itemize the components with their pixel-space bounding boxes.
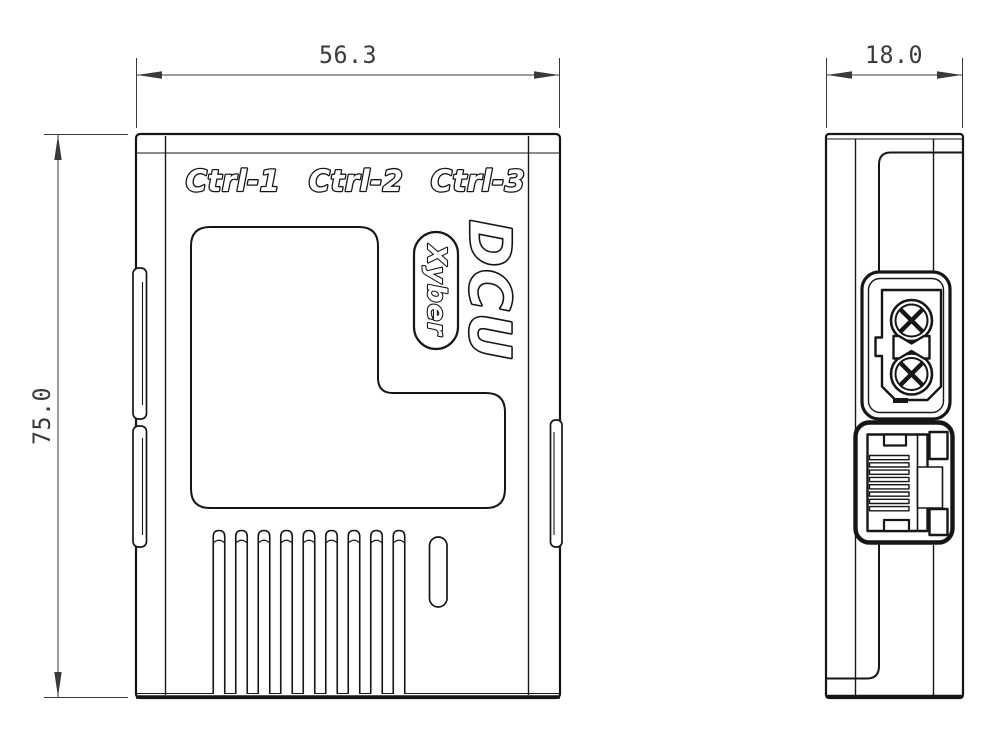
left-clip-tabs [133,268,147,547]
dimension-front-height: 75.0 [28,135,128,698]
dimension-front-width: 56.3 [137,41,560,128]
technical-drawing-sheet: Ctrl-1 Ctrl-2 Ctrl-3 Xyber DCU [0,0,1000,737]
vent-slot [393,531,405,695]
vent-slot [348,531,360,695]
dim-value-front-width: 56.3 [319,41,377,69]
front-view: Ctrl-1 Ctrl-2 Ctrl-3 Xyber DCU [133,134,562,698]
rj45-top-notch [884,435,906,446]
rj45-pin [870,456,910,460]
brand-name-text: Xyber [421,243,451,337]
port-label-ctrl2: Ctrl-2 [309,164,404,198]
rj45-shield-tab-bottom [930,509,948,535]
rj45-pin [870,499,910,503]
dim-value-front-height: 75.0 [28,387,56,445]
rj45-pin [870,470,910,474]
vent-slot [303,531,315,695]
rj45-ethernet-port [856,423,953,543]
vent-slot [258,531,270,695]
left-clip-tab-upper [133,268,147,419]
arrowhead-right [534,71,559,78]
rj45-pin [870,492,910,496]
dcu-enclosure-drawing: Ctrl-1 Ctrl-2 Ctrl-3 Xyber DCU [0,0,1000,737]
rj45-shield-tab-top [930,432,948,459]
side-view [826,134,963,698]
rj45-pin [870,485,910,489]
xt30-bottom-mark [893,398,908,403]
arrowhead-right [937,71,962,78]
product-name-text: DCU [457,220,522,362]
vent-slot [281,531,293,695]
vent-slot [371,531,383,695]
vent-slot [236,531,248,695]
rj45-pin [870,477,910,481]
arrowhead-left [137,71,162,78]
dimension-side-depth: 18.0 [827,41,963,128]
dim-value-side-depth: 18.0 [865,41,923,69]
port-label-ctrl3: Ctrl-3 [431,164,526,198]
port-label-ctrl1: Ctrl-1 [186,164,281,198]
vent-slot [326,531,338,695]
rj45-pin [870,507,910,511]
arrowhead-top [54,135,61,160]
vent-slots [213,531,405,695]
arrowhead-bottom [54,672,61,697]
rj45-bottom-notch [884,520,909,531]
right-clip-tab [551,420,563,547]
arrowhead-left [827,71,852,78]
vent-slot [213,531,225,695]
rj45-latch-step [918,467,943,508]
xt30-power-connector [862,272,950,419]
left-clip-tab-lower [133,426,147,547]
rj45-pin [870,463,910,467]
oblong-slot [430,537,448,607]
